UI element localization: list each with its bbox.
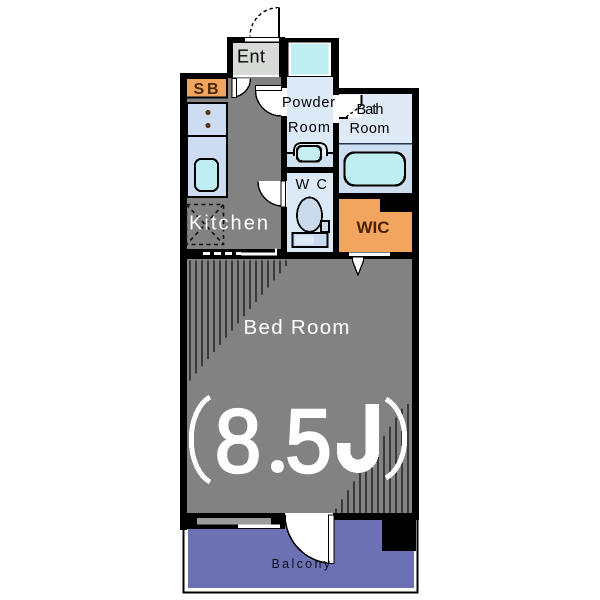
- svg-text:Powder: Powder: [282, 95, 335, 111]
- svg-text:WIC: WIC: [357, 218, 390, 237]
- svg-text:C: C: [317, 177, 327, 193]
- svg-text:Room: Room: [288, 120, 330, 136]
- svg-text:SB: SB: [194, 81, 219, 98]
- svg-text:Bath: Bath: [357, 102, 384, 118]
- svg-text:W: W: [296, 177, 310, 193]
- svg-text:Ent: Ent: [237, 47, 265, 67]
- svg-text:8: 8: [215, 391, 262, 491]
- svg-text:Room: Room: [350, 121, 390, 137]
- svg-text:5: 5: [285, 391, 332, 491]
- svg-text:Bed Room: Bed Room: [244, 316, 350, 339]
